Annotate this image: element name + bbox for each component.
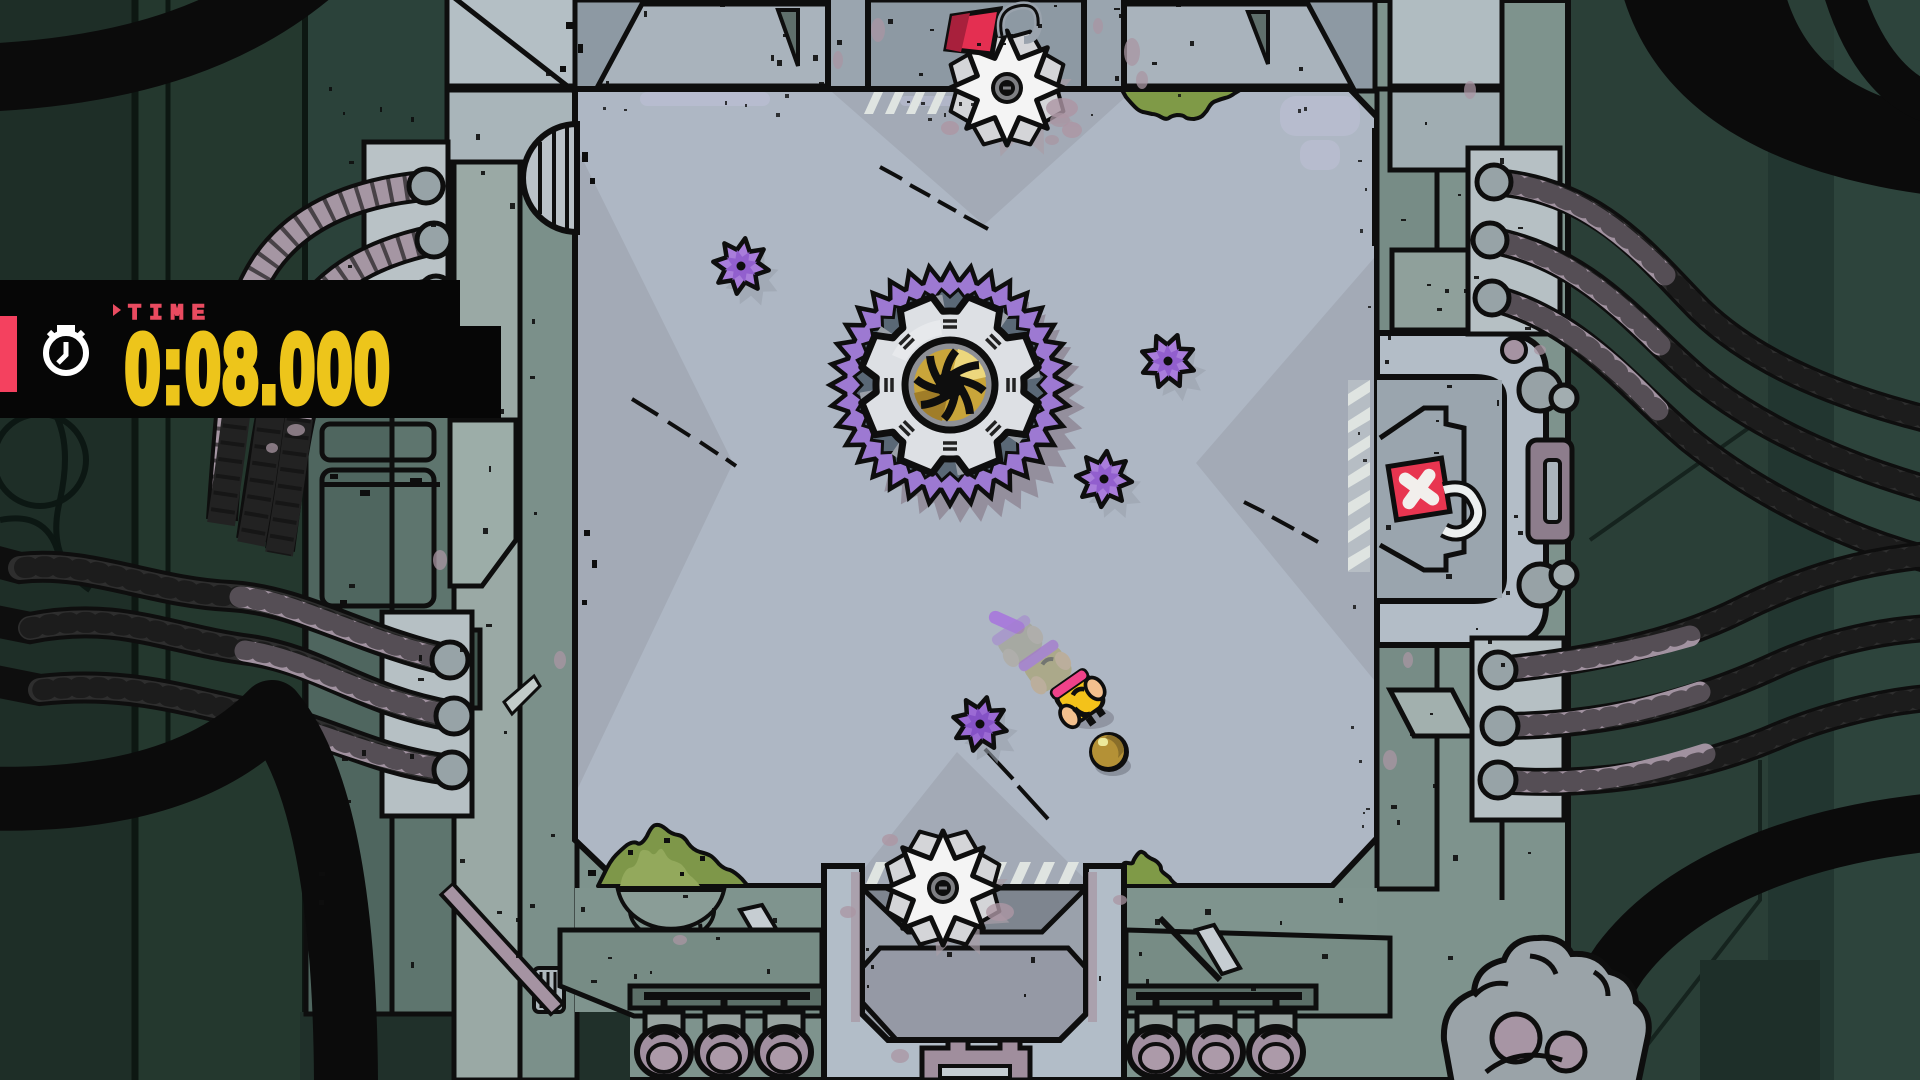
svg-text:0:08.000: 0:08.000: [125, 316, 392, 424]
